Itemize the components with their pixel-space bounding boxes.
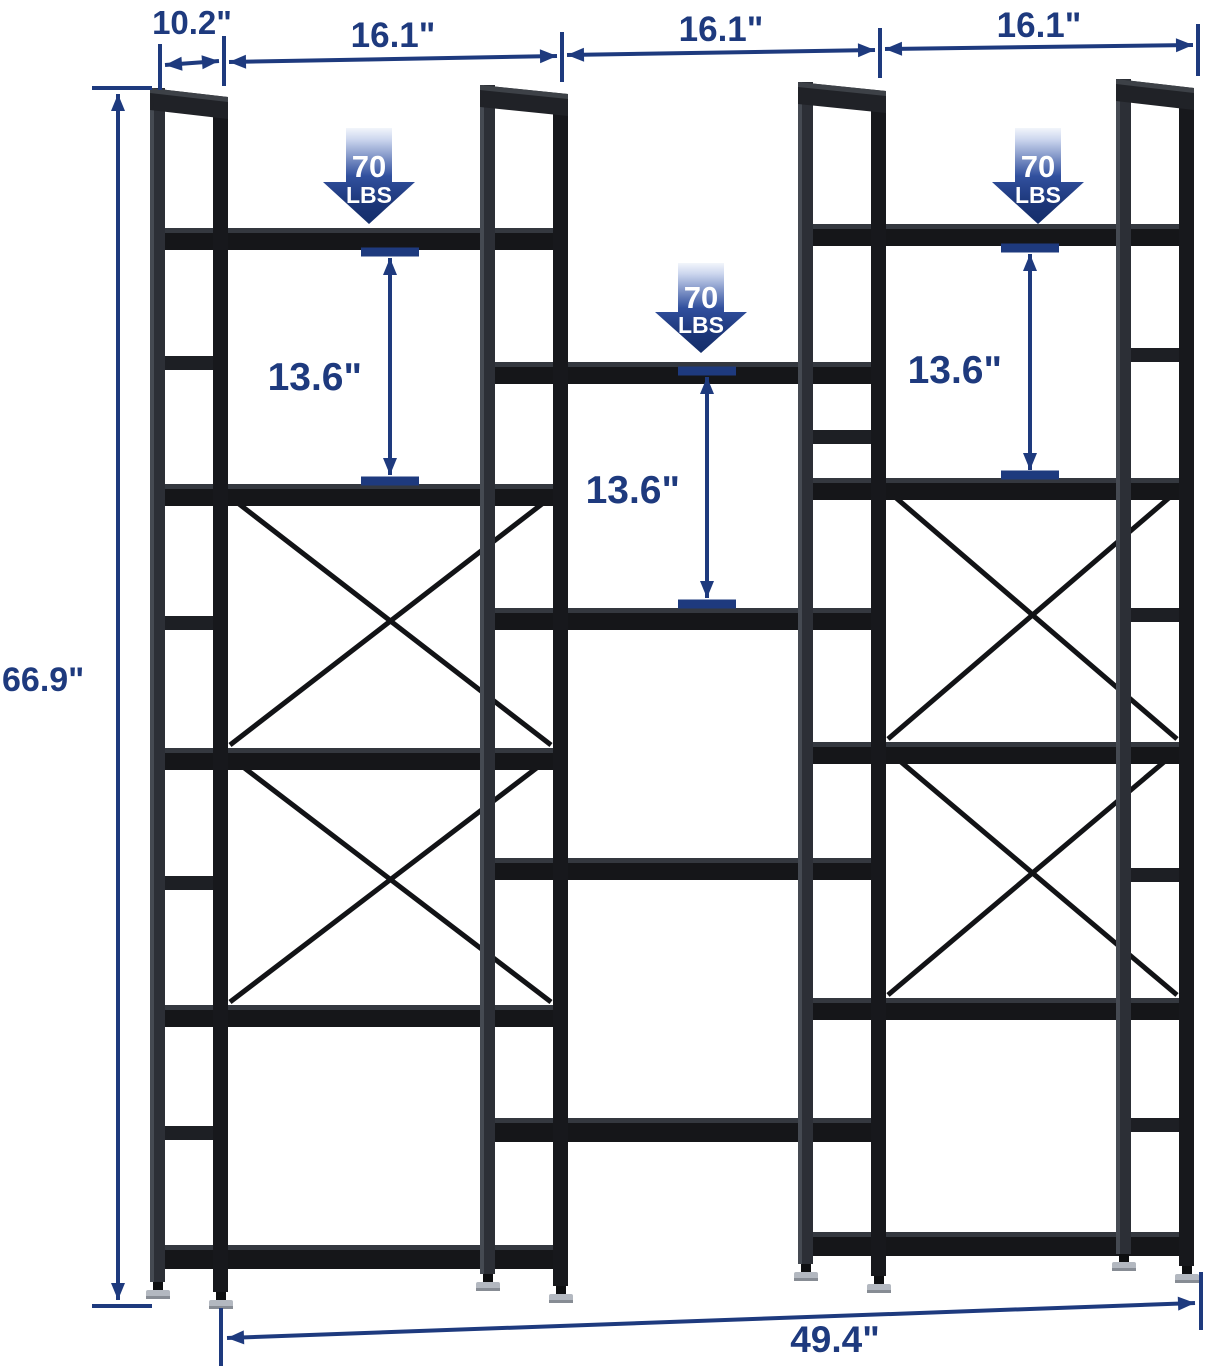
bay-width-label: 16.1" — [351, 16, 436, 55]
adjustable-foot — [146, 1282, 170, 1299]
load-unit: LBS — [346, 182, 392, 208]
shelf-board — [150, 1245, 568, 1269]
shelf-gap-label: 13.6" — [908, 349, 1002, 392]
height-label: 66.9" — [2, 661, 84, 699]
bay-width-label: 16.1" — [679, 10, 764, 49]
frame-right-inner — [798, 82, 886, 1276]
shelf-board — [798, 478, 1194, 500]
shelf-board — [150, 748, 568, 770]
product-dimension-diagram: 10.2" 16.1" 16.1" 16.1" 66.9" 49.4" — [0, 0, 1212, 1368]
adjustable-foot — [1175, 1266, 1199, 1283]
load-value: 70 — [1021, 149, 1055, 184]
shelf-board — [480, 1118, 886, 1142]
dim-shelf-gap-1: 13.6" — [268, 252, 419, 481]
adjustable-foot — [209, 1292, 233, 1309]
frame-post — [213, 97, 228, 1292]
frame-rung — [165, 1126, 213, 1140]
dim-bay-width-2: 16.1" — [567, 10, 875, 55]
load-unit: LBS — [678, 312, 724, 338]
shelf-board — [480, 608, 886, 630]
adjustable-foot — [476, 1274, 500, 1291]
frame-rung — [1131, 868, 1179, 882]
frame-rung — [165, 356, 213, 370]
frame-left-outer — [150, 88, 228, 1292]
frame-right-outer — [1116, 79, 1194, 1266]
adjustable-foot — [549, 1286, 573, 1303]
dimension-line — [165, 61, 219, 65]
load-arrow-3: 70 LBS — [992, 128, 1084, 224]
frame-rung — [165, 616, 213, 630]
frame-rung — [1131, 348, 1179, 362]
adjustable-foot — [867, 1276, 891, 1293]
dim-shelf-gap-2: 13.6" — [586, 371, 736, 604]
adjustable-foot — [794, 1264, 818, 1281]
load-arrow-1: 70 LBS — [323, 128, 415, 224]
frame-post-highlight — [480, 85, 484, 1274]
bookshelf — [146, 79, 1199, 1309]
frame-rung — [1131, 1118, 1179, 1132]
dimension-line — [229, 56, 557, 62]
shelf-board — [798, 1232, 1194, 1256]
frame-rung — [813, 430, 871, 444]
shelf-board — [150, 228, 568, 250]
frame-post — [553, 94, 568, 1286]
shelf-board — [150, 484, 568, 506]
overall-width-label: 49.4" — [790, 1319, 880, 1360]
frame-post — [871, 91, 886, 1276]
dimension-line — [885, 45, 1193, 49]
dim-bay-width-1: 16.1" — [229, 16, 557, 62]
shelf-gap-label: 13.6" — [268, 356, 362, 399]
shelf-gap-label: 13.6" — [586, 469, 680, 512]
load-arrow-2: 70 LBS — [655, 263, 747, 353]
shelf-board — [798, 742, 1194, 764]
frame-post-highlight — [798, 82, 802, 1264]
dimension-line — [567, 50, 875, 55]
shelf-board — [150, 1005, 568, 1027]
frame-post — [1179, 88, 1194, 1266]
load-value: 70 — [352, 149, 386, 184]
bay-width-label: 16.1" — [997, 6, 1082, 45]
load-value: 70 — [684, 280, 718, 315]
adjustable-foot — [1112, 1254, 1136, 1271]
frame-rung — [165, 876, 213, 890]
frame-post-highlight — [1116, 79, 1120, 1254]
shelf-board — [480, 858, 886, 880]
shelf-board — [798, 998, 1194, 1020]
shelf-board — [798, 224, 1194, 246]
dim-overall-width: 49.4" — [221, 1272, 1201, 1366]
dimension-line — [227, 1303, 1195, 1338]
frame-left-inner — [480, 85, 568, 1286]
dim-height: 66.9" — [2, 88, 152, 1306]
dim-shelf-gap-3: 13.6" — [908, 248, 1059, 475]
dim-bay-width-3: 16.1" — [885, 6, 1193, 49]
diagram-canvas: 10.2" 16.1" 16.1" 16.1" 66.9" 49.4" — [0, 0, 1212, 1368]
dimension-annotations: 10.2" 16.1" 16.1" 16.1" 66.9" 49.4" — [2, 4, 1201, 1366]
load-unit: LBS — [1015, 182, 1061, 208]
depth-label: 10.2" — [152, 4, 232, 41]
frame-post-highlight — [150, 88, 154, 1282]
frame-rung — [1131, 608, 1179, 622]
dim-depth: 10.2" — [152, 4, 232, 65]
